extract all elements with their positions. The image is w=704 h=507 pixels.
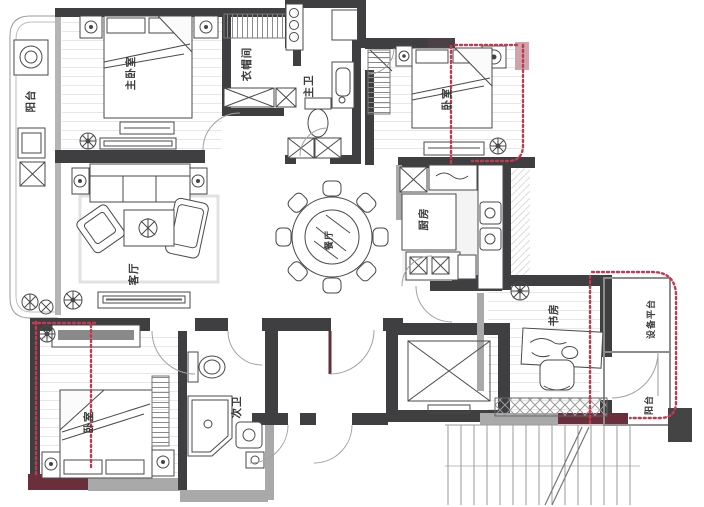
cabinet: [224, 88, 274, 107]
stairs: [445, 425, 640, 505]
wardrobe-rack: [368, 50, 390, 114]
sink: [236, 422, 262, 448]
plant-icon: [22, 294, 38, 310]
desk-chair: [540, 360, 574, 390]
fridge: [400, 167, 427, 192]
plant-icon: [64, 291, 82, 309]
kitchen-fixtures: [400, 165, 503, 289]
cabinet: [458, 255, 476, 279]
dresser: [52, 325, 140, 347]
washer: [246, 452, 264, 468]
plant-icon: [39, 326, 55, 342]
bed-bench: [120, 122, 174, 134]
sink: [480, 228, 501, 250]
vanity: [286, 4, 303, 50]
room-label-balcony-right: 阳台: [643, 395, 655, 415]
floor-plan: 主卧室 衣帽间 主卫 卧室 客厅 餐厅 厨房 书房 设备平台 阳台 阳台 卧室 …: [0, 0, 704, 507]
floor-plan-drawing: 主卧室 衣帽间 主卫 卧室 客厅 餐厅 厨房 书房 设备平台 阳台 阳台 卧室 …: [0, 0, 704, 507]
room-label-master-bathroom: 主卫: [302, 75, 315, 98]
stool: [18, 128, 45, 158]
sofa: [90, 164, 190, 202]
tv-console: [100, 138, 176, 149]
room-label-living-room: 客厅: [127, 263, 140, 287]
second-bathroom-fixtures: [188, 352, 264, 468]
entry-door: [330, 330, 374, 374]
master-bathroom-fixtures: [286, 4, 358, 158]
washing-machine: [14, 40, 48, 75]
shower: [188, 396, 232, 456]
counter: [429, 165, 477, 190]
room-label-kitchen: 厨房: [417, 208, 430, 231]
counter: [478, 165, 503, 289]
tv-console: [98, 292, 190, 308]
left-balcony-items: [14, 40, 53, 314]
bed: [104, 16, 192, 118]
armchair: [75, 203, 126, 255]
nightstand: [80, 16, 102, 38]
cloakroom-furniture: [224, 14, 296, 107]
nightstand: [42, 452, 60, 478]
study-door: [416, 286, 452, 322]
cabinet: [20, 162, 45, 186]
wardrobe-rack: [224, 14, 296, 38]
room-label-second-bathroom: 次卫: [230, 396, 243, 419]
wardrobe-rack: [152, 376, 169, 446]
room-label-bedroom-top-right: 卧室: [440, 88, 453, 111]
toilet: [305, 98, 331, 137]
cabinet: [276, 88, 296, 107]
plant-icon: [490, 138, 506, 154]
nightstand: [152, 450, 174, 476]
coffee-table: [124, 210, 174, 246]
bed-bench: [424, 142, 484, 155]
bed: [60, 390, 152, 478]
cabinet: [315, 138, 341, 158]
room-label-master-bedroom: 主卧室: [124, 56, 137, 91]
cooktop: [406, 252, 460, 280]
duct: [332, 10, 358, 40]
room-label-balcony-left: 阳台: [24, 90, 37, 113]
sink: [480, 202, 501, 224]
balcony-window-wall: [55, 12, 61, 315]
nightstand: [194, 16, 218, 38]
plant-icon: [80, 133, 96, 149]
platform-door: [612, 352, 658, 398]
second-bath-door: [228, 331, 262, 365]
shower: [332, 62, 354, 108]
nightstand: [396, 46, 412, 66]
plant-icon: [511, 282, 529, 300]
living-room-furniture: [64, 164, 209, 309]
lower-balcony-door: [314, 425, 352, 463]
toilet: [188, 352, 225, 382]
side-table: [190, 168, 207, 194]
room-label-cloakroom: 衣帽间: [240, 47, 253, 82]
room-label-bedroom-bottom-left: 卧室: [82, 411, 95, 434]
room-label-equipment-platform: 设备平台: [645, 299, 657, 339]
side-table: [72, 168, 89, 194]
room-label-study: 书房: [547, 304, 560, 327]
room-label-dining-room: 餐厅: [323, 230, 335, 251]
